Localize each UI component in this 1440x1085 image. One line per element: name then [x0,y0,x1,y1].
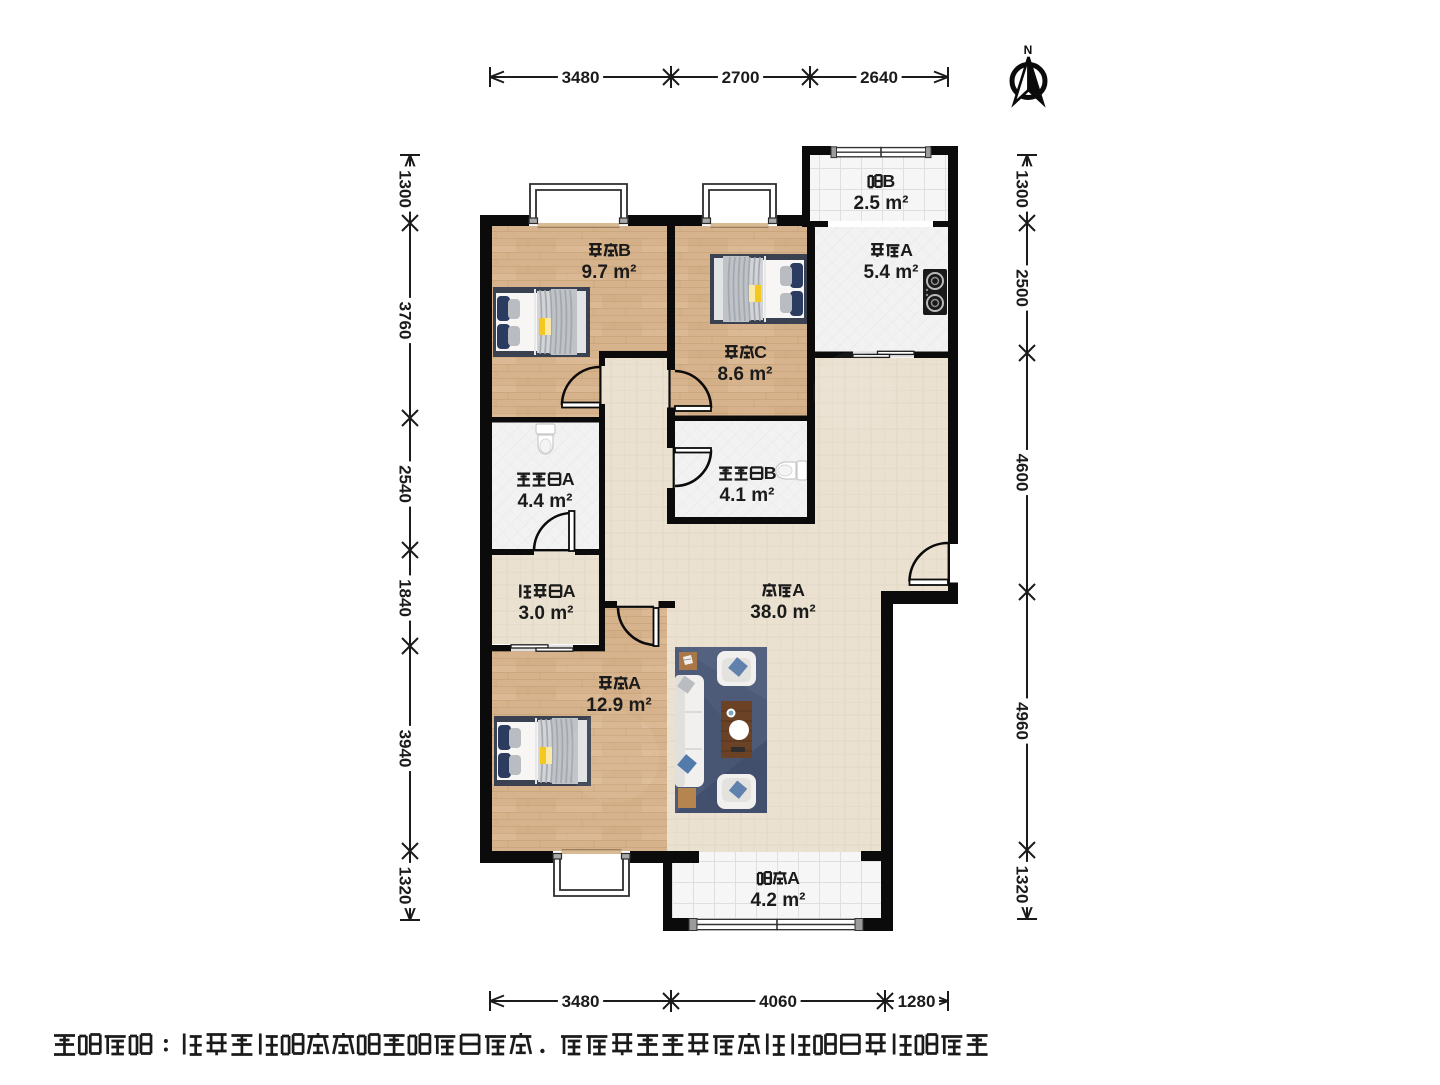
svg-text:1300: 1300 [396,170,415,208]
svg-text:1320: 1320 [396,867,415,905]
svg-text:B: B [882,171,895,191]
svg-text:3480: 3480 [562,992,600,1011]
svg-text:2540: 2540 [396,465,415,503]
svg-text:3480: 3480 [562,68,600,87]
svg-text:4060: 4060 [759,992,797,1011]
svg-text:1840: 1840 [396,579,415,617]
svg-text:4600: 4600 [1013,454,1032,492]
svg-text:3760: 3760 [396,302,415,340]
svg-text:4960: 4960 [1013,702,1032,740]
svg-text:N: N [1024,43,1033,57]
svg-text:1300: 1300 [1013,170,1032,208]
svg-text:2640: 2640 [860,68,898,87]
svg-text:2.5 m²: 2.5 m² [854,193,909,214]
svg-text:B: B [764,463,777,483]
svg-text:A: A [792,580,805,600]
svg-text:A: A [628,673,641,693]
svg-text:5.4 m²: 5.4 m² [864,262,919,283]
svg-text:1320: 1320 [1013,866,1032,904]
svg-text:4.1 m²: 4.1 m² [720,485,775,506]
svg-text:4.4 m²: 4.4 m² [518,491,573,512]
svg-text:4.2 m²: 4.2 m² [751,890,806,911]
svg-text:2700: 2700 [722,68,760,87]
svg-text:2500: 2500 [1013,269,1032,307]
svg-text:A: A [562,469,575,489]
svg-text:8.6 m²: 8.6 m² [718,364,773,385]
svg-text:C: C [754,342,767,362]
svg-text:9.7 m²: 9.7 m² [582,262,637,283]
svg-text:1280: 1280 [898,992,936,1011]
svg-text:B: B [618,240,631,260]
svg-text:A: A [787,868,800,888]
svg-text:3940: 3940 [396,730,415,768]
svg-text:38.0 m²: 38.0 m² [750,602,815,623]
svg-text:A: A [900,240,913,260]
svg-text:3.0 m²: 3.0 m² [519,603,574,624]
svg-text:A: A [563,581,576,601]
